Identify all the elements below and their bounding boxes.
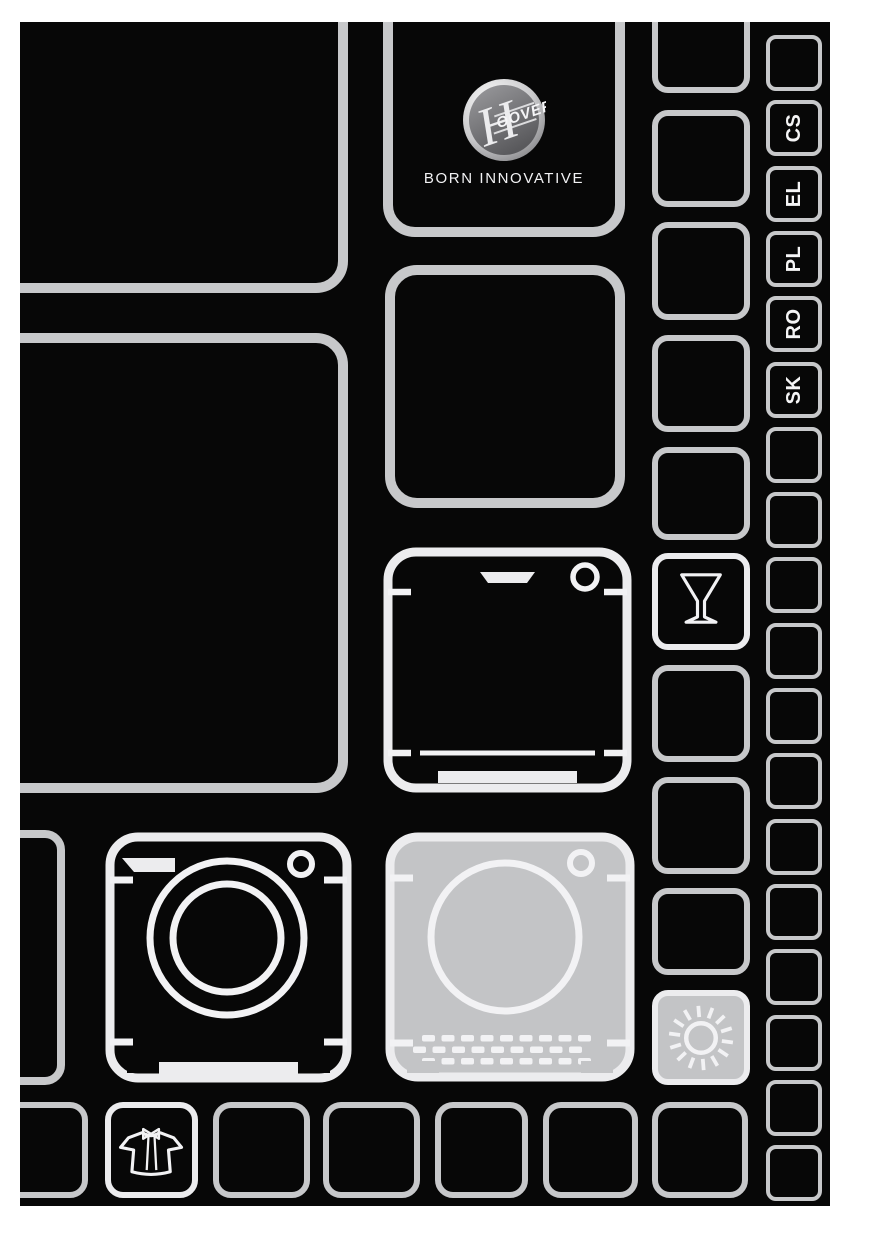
tile-dishwasher bbox=[383, 547, 632, 793]
tile-tumble-dryer bbox=[385, 832, 635, 1082]
tile-mid-left-large bbox=[20, 333, 348, 793]
manual-cover-page: H OOVER BORN INNOVATIVE bbox=[0, 0, 874, 1240]
tile-bottom-4 bbox=[323, 1102, 420, 1198]
shirt-icon bbox=[111, 1104, 192, 1196]
language-square-empty bbox=[766, 492, 822, 548]
tile-right-mid-7 bbox=[652, 665, 750, 762]
language-code-label: SK bbox=[770, 366, 818, 414]
hoover-logo-badge: H OOVER bbox=[462, 78, 546, 162]
wine-glass-icon bbox=[658, 559, 744, 645]
tumble-dryer-icon bbox=[385, 832, 635, 1082]
language-square-el: EL bbox=[766, 166, 822, 222]
tile-left-sliver bbox=[20, 830, 65, 1085]
tile-washing-machine bbox=[105, 832, 352, 1083]
tile-shirt bbox=[105, 1102, 198, 1198]
tile-bottom-sliver bbox=[20, 1102, 88, 1198]
tile-bottom-5 bbox=[435, 1102, 528, 1198]
language-code-label: EL bbox=[770, 170, 818, 218]
tile-sun-inner bbox=[658, 996, 744, 1079]
language-square-ro: RO bbox=[766, 296, 822, 352]
language-code-label: PL bbox=[770, 235, 818, 283]
language-square-empty bbox=[766, 688, 822, 744]
washing-machine-icon bbox=[105, 832, 352, 1083]
tile-right-mid-3 bbox=[652, 222, 750, 320]
tile-right-mid-1 bbox=[652, 22, 750, 93]
language-square-empty bbox=[766, 427, 822, 483]
tile-bottom-6 bbox=[543, 1102, 638, 1198]
language-square-empty bbox=[766, 623, 822, 679]
tile-right-mid-8 bbox=[652, 777, 750, 874]
language-square-sk: SK bbox=[766, 362, 822, 418]
tile-top-left-large bbox=[20, 22, 348, 293]
language-square-cs: CS bbox=[766, 100, 822, 156]
tile-sun bbox=[652, 990, 750, 1085]
sun-icon bbox=[658, 991, 744, 1085]
dishwasher-icon bbox=[383, 547, 632, 793]
language-square-empty bbox=[766, 949, 822, 1005]
brand-tile-inner: H OOVER BORN INNOVATIVE bbox=[393, 22, 615, 227]
language-square-empty bbox=[766, 1015, 822, 1071]
cover-canvas: H OOVER BORN INNOVATIVE bbox=[20, 22, 830, 1206]
tile-right-mid-5 bbox=[652, 447, 750, 540]
language-square-empty bbox=[766, 557, 822, 613]
tile-bottom-7 bbox=[652, 1102, 748, 1198]
tile-right-mid-4 bbox=[652, 335, 750, 432]
language-square-empty bbox=[766, 1145, 822, 1201]
tile-wine-glass bbox=[652, 553, 750, 650]
hoover-logo: H OOVER bbox=[462, 78, 546, 162]
language-code-label: CS bbox=[770, 104, 818, 152]
tile-center-empty bbox=[385, 265, 625, 508]
language-square-pl: PL bbox=[766, 231, 822, 287]
language-square-empty bbox=[766, 819, 822, 875]
tile-right-mid-9 bbox=[652, 888, 750, 975]
tile-bottom-3 bbox=[213, 1102, 310, 1198]
brand-tagline: BORN INNOVATIVE bbox=[393, 170, 615, 187]
language-square-empty bbox=[766, 35, 822, 91]
language-square-empty bbox=[766, 753, 822, 809]
brand-tile: H OOVER BORN INNOVATIVE bbox=[383, 22, 625, 237]
tile-shirt-inner bbox=[111, 1108, 192, 1192]
language-square-empty bbox=[766, 884, 822, 940]
tile-wine-glass-inner bbox=[658, 559, 744, 644]
language-code-label: RO bbox=[770, 300, 818, 348]
language-square-empty bbox=[766, 1080, 822, 1136]
tile-right-mid-2 bbox=[652, 110, 750, 207]
